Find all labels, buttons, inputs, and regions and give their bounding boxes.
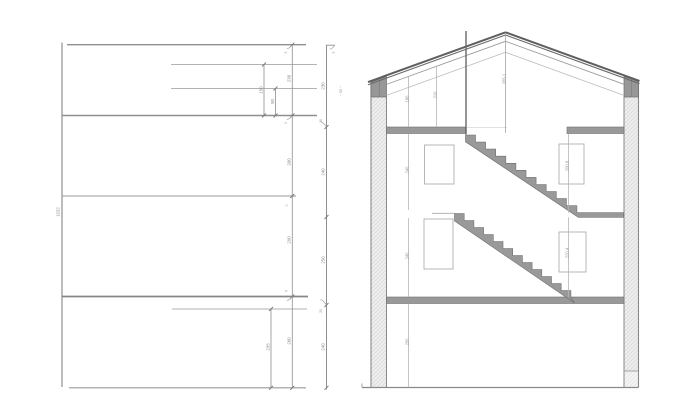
svg-text:3: 3 (284, 51, 288, 53)
svg-text:210: 210 (432, 91, 437, 99)
svg-text:250: 250 (321, 256, 326, 264)
svg-text:200: 200 (287, 158, 292, 166)
svg-text:240: 240 (404, 166, 409, 174)
svg-text:3: 3 (284, 122, 288, 124)
svg-text:5: 5 (284, 290, 288, 292)
svg-text:~ 50 ~: ~ 50 ~ (339, 85, 343, 97)
svg-text:25: 25 (319, 309, 323, 313)
svg-text:3: 3 (331, 51, 335, 53)
svg-text:240: 240 (321, 168, 326, 176)
svg-text:90: 90 (270, 99, 275, 104)
svg-text:265.1: 265.1 (501, 73, 506, 84)
svg-text:26: 26 (319, 119, 323, 123)
svg-text:240: 240 (321, 343, 326, 351)
svg-text:230: 230 (287, 74, 292, 82)
svg-text:250: 250 (404, 338, 409, 346)
svg-text:290: 290 (287, 236, 292, 244)
svg-text:200.8: 200.8 (564, 160, 569, 171)
svg-text:260: 260 (287, 337, 292, 345)
svg-text:5: 5 (285, 204, 289, 206)
svg-text:230: 230 (321, 82, 326, 90)
svg-text:240: 240 (404, 252, 409, 260)
svg-text:180: 180 (404, 95, 409, 103)
svg-text:235: 235 (265, 343, 270, 351)
svg-text:220.4: 220.4 (564, 247, 569, 258)
svg-text:150: 150 (258, 86, 263, 94)
svg-text:1032: 1032 (55, 207, 60, 217)
